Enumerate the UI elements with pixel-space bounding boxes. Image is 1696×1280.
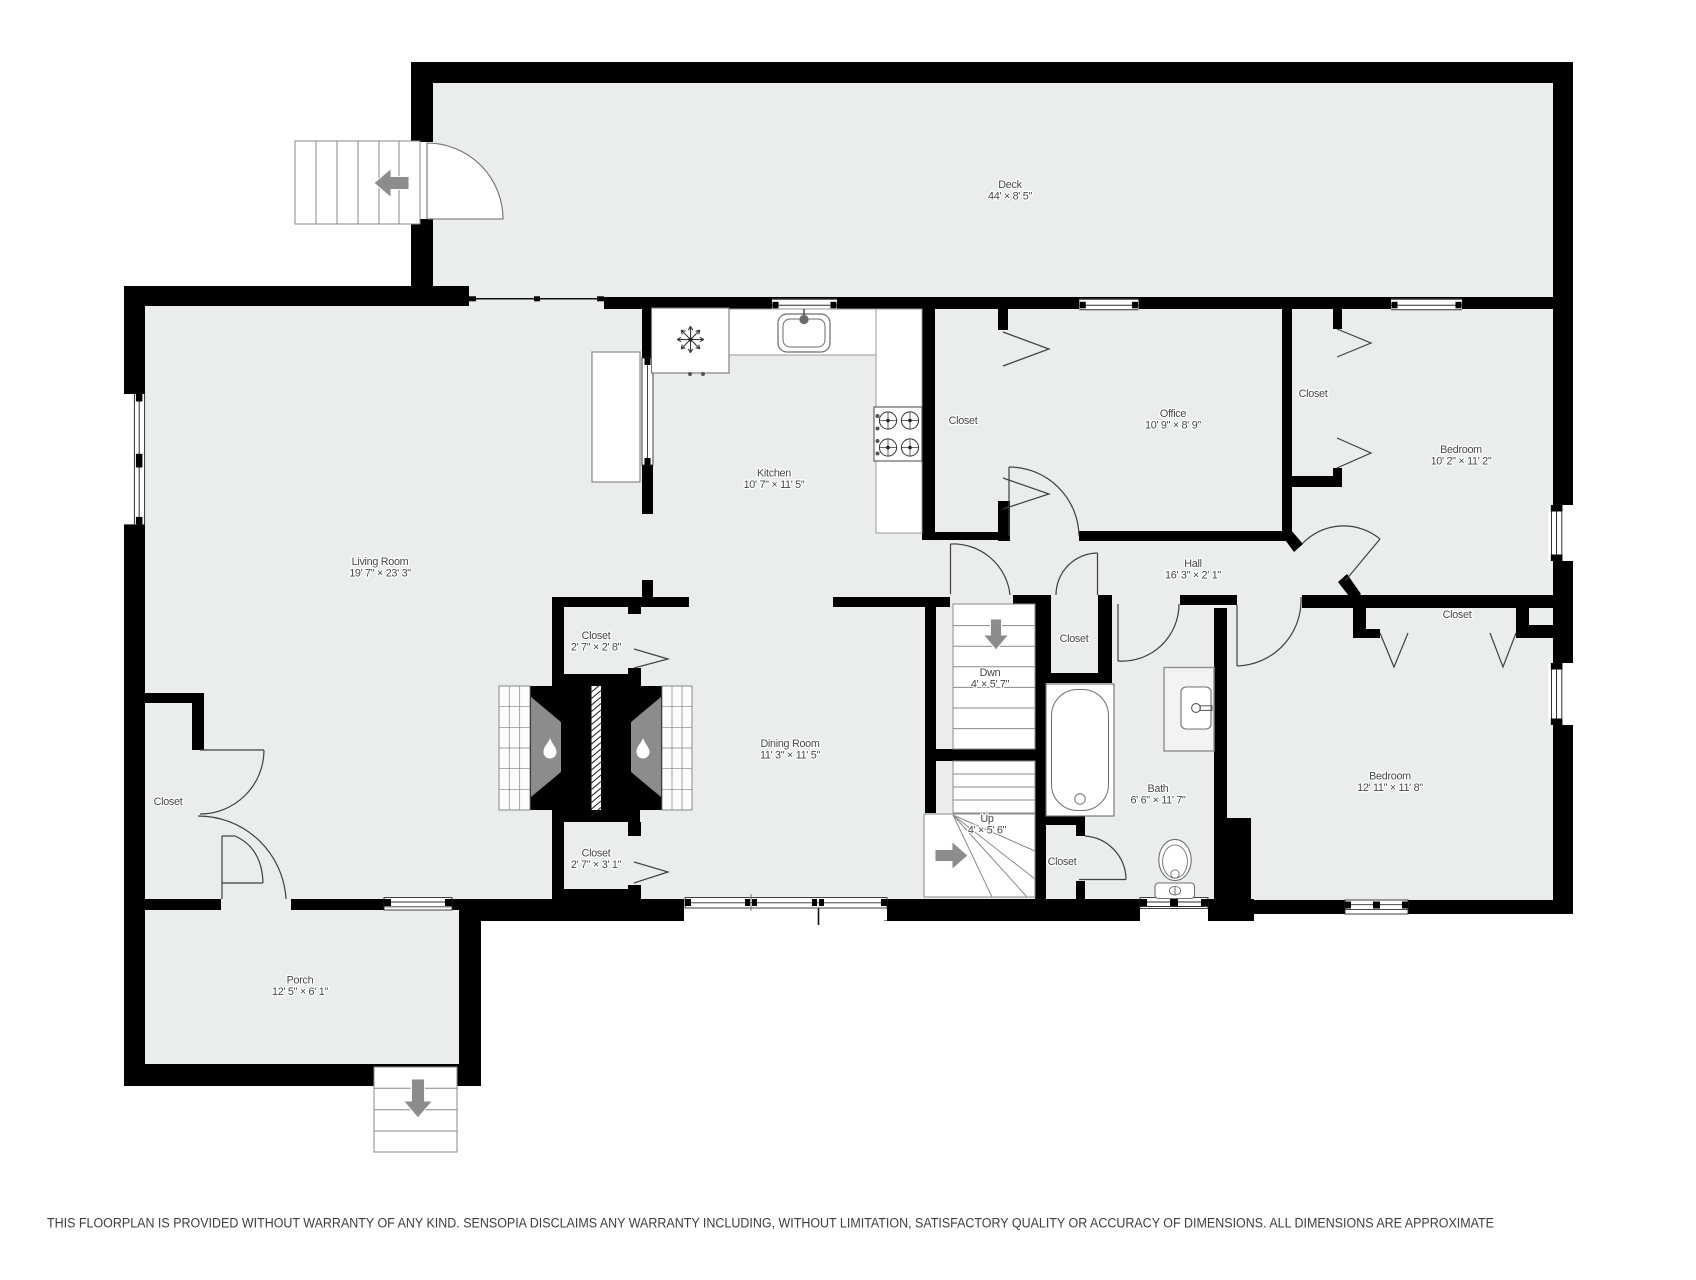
- svg-text:Dwn: Dwn: [980, 667, 1001, 679]
- svg-text:Closet: Closet: [582, 848, 611, 860]
- svg-text:Kitchen: Kitchen: [757, 468, 791, 480]
- svg-text:Bedroom: Bedroom: [1369, 771, 1411, 783]
- svg-text:Bedroom: Bedroom: [1440, 444, 1482, 456]
- svg-text:2' 7" × 3' 1": 2' 7" × 3' 1": [571, 859, 622, 871]
- svg-text:Hall: Hall: [1184, 558, 1201, 570]
- svg-text:12' 11" × 11' 8": 12' 11" × 11' 8": [1357, 782, 1423, 794]
- svg-text:Office: Office: [1160, 408, 1186, 420]
- svg-text:Closet: Closet: [1299, 388, 1328, 400]
- svg-text:10' 2" × 11' 2": 10' 2" × 11' 2": [1431, 456, 1492, 468]
- svg-text:16' 3" × 2' 1": 16' 3" × 2' 1": [1165, 570, 1221, 582]
- svg-text:10' 9" × 8' 9": 10' 9" × 8' 9": [1145, 420, 1201, 432]
- svg-text:12' 5" × 6' 1": 12' 5" × 6' 1": [272, 986, 328, 998]
- svg-text:Up: Up: [980, 813, 993, 825]
- svg-text:6' 6" × 11' 7": 6' 6" × 11' 7": [1130, 795, 1186, 807]
- svg-text:19' 7" × 23' 3": 19' 7" × 23' 3": [349, 568, 411, 580]
- svg-text:Closet: Closet: [582, 630, 611, 642]
- svg-text:Closet: Closet: [949, 415, 978, 427]
- svg-text:44' × 8' 5": 44' × 8' 5": [988, 191, 1032, 203]
- svg-text:4' × 5' 7": 4' × 5' 7": [971, 679, 1010, 691]
- svg-text:10' 7" × 11' 5": 10' 7" × 11' 5": [744, 479, 805, 491]
- svg-text:Closet: Closet: [1443, 609, 1472, 621]
- svg-text:Closet: Closet: [1048, 856, 1077, 868]
- svg-text:Dining Room: Dining Room: [760, 738, 819, 750]
- svg-text:Bath: Bath: [1147, 783, 1168, 795]
- svg-text:Closet: Closet: [1060, 633, 1089, 645]
- svg-text:Deck: Deck: [998, 179, 1022, 191]
- svg-text:2' 7" × 2' 8": 2' 7" × 2' 8": [571, 642, 622, 654]
- svg-text:4' × 5' 6": 4' × 5' 6": [968, 825, 1007, 837]
- svg-text:THIS FLOORPLAN IS PROVIDED WIT: THIS FLOORPLAN IS PROVIDED WITHOUT WARRA…: [47, 1216, 1494, 1231]
- svg-text:Closet: Closet: [154, 796, 183, 808]
- svg-text:Porch: Porch: [287, 975, 314, 987]
- svg-text:11' 3" × 11' 5": 11' 3" × 11' 5": [760, 750, 820, 762]
- svg-text:Living Room: Living Room: [352, 556, 409, 568]
